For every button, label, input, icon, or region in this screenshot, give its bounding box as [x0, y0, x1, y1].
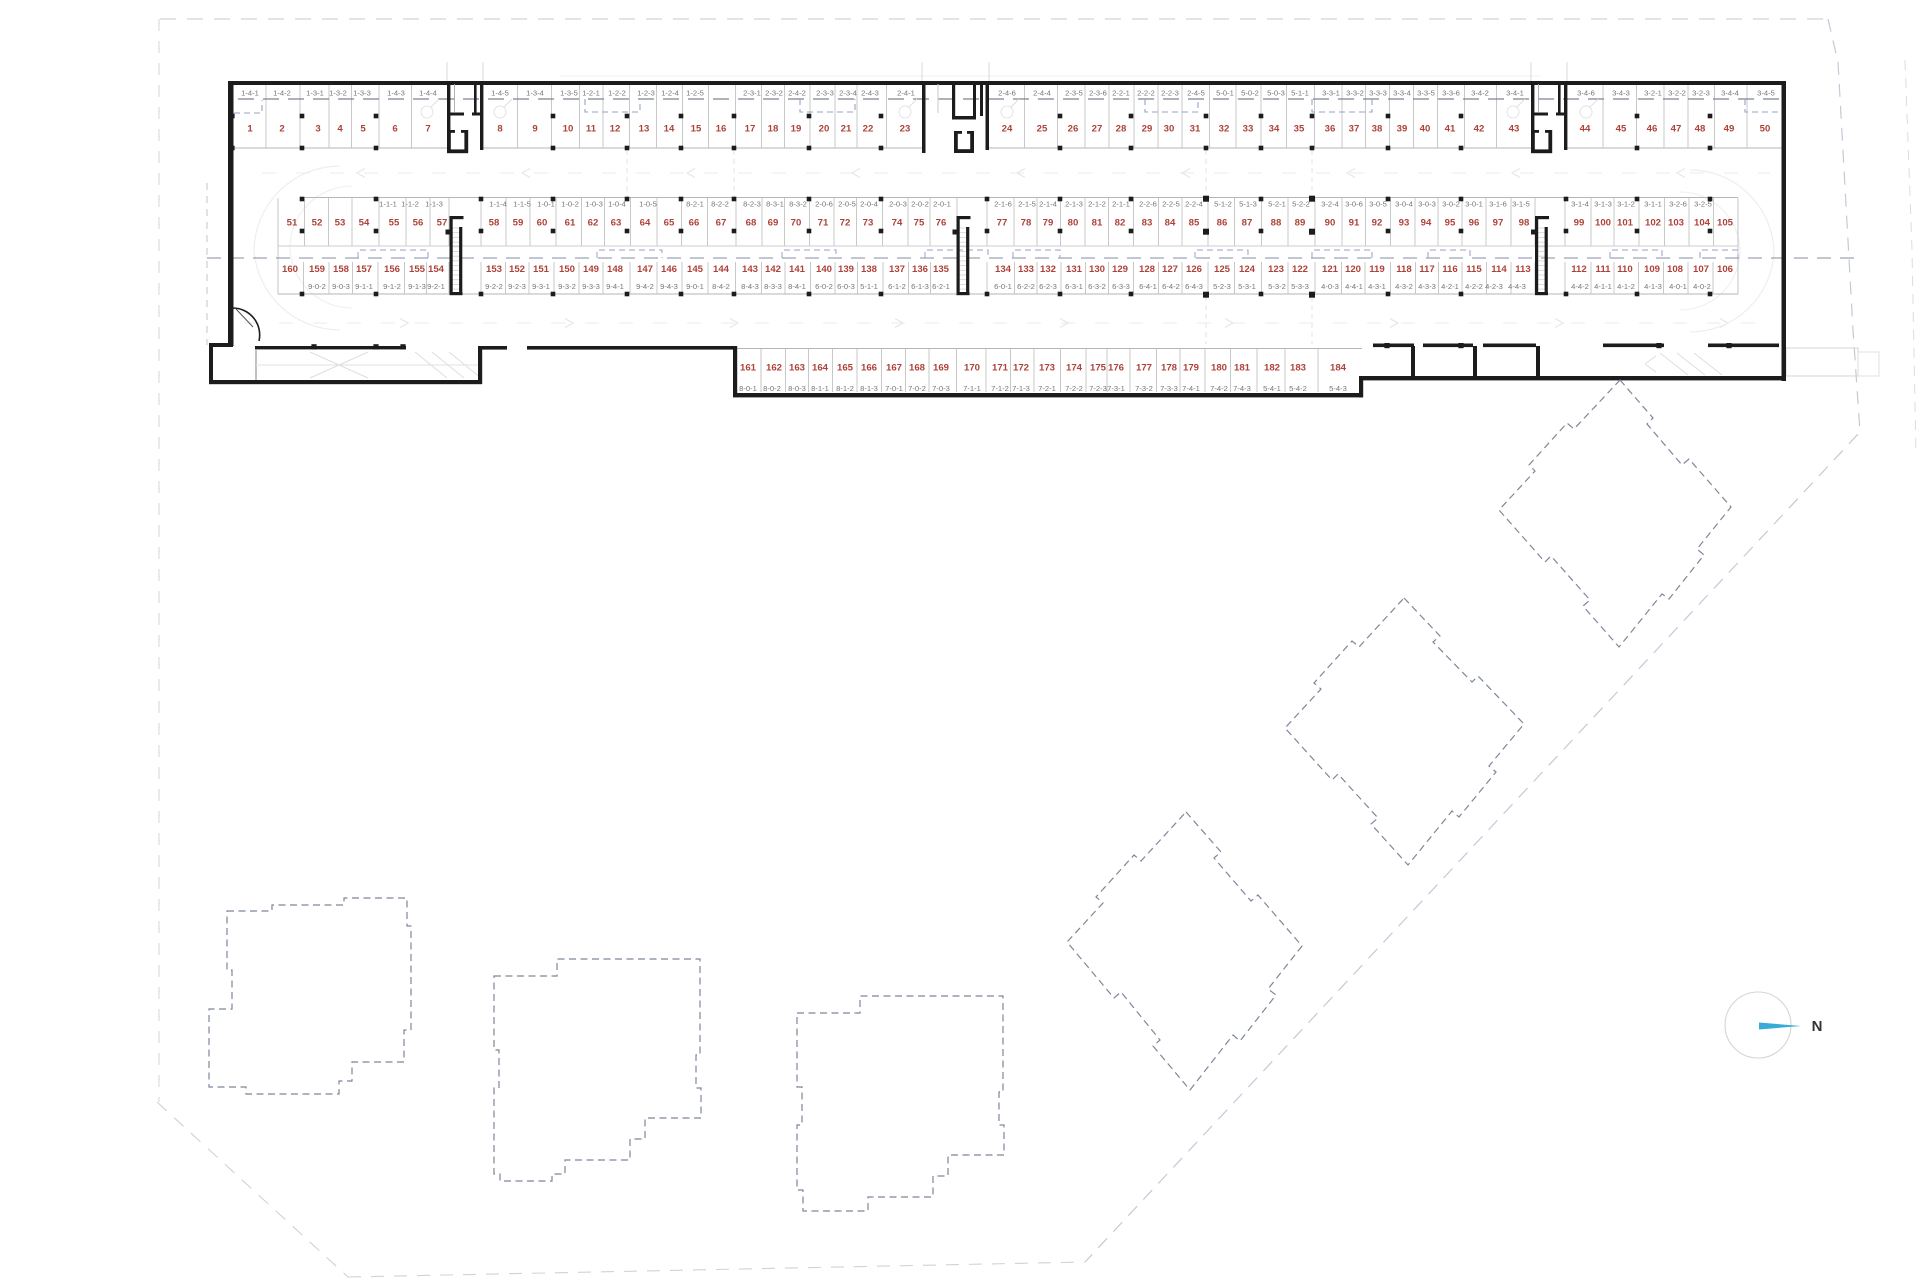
svg-text:8-1-2: 8-1-2	[836, 384, 854, 393]
svg-text:93: 93	[1399, 218, 1410, 229]
svg-text:8-0-2: 8-0-2	[763, 384, 781, 393]
svg-text:2-0-2: 2-0-2	[911, 200, 929, 209]
svg-text:2-2-2: 2-2-2	[1137, 89, 1155, 98]
svg-text:1-1-1: 1-1-1	[379, 200, 397, 209]
svg-text:56: 56	[413, 218, 424, 229]
svg-text:52: 52	[312, 218, 323, 229]
svg-text:9-3-1: 9-3-1	[532, 282, 550, 291]
svg-text:7-2-1: 7-2-1	[1038, 384, 1056, 393]
svg-text:153: 153	[486, 264, 502, 275]
svg-text:141: 141	[789, 264, 806, 275]
svg-text:34: 34	[1269, 124, 1280, 135]
svg-text:126: 126	[1186, 264, 1202, 275]
svg-text:117: 117	[1419, 264, 1434, 275]
svg-text:25: 25	[1037, 124, 1048, 135]
svg-text:2-3-5: 2-3-5	[1065, 89, 1083, 98]
svg-text:15: 15	[691, 124, 702, 135]
svg-text:1-0-3: 1-0-3	[585, 200, 603, 209]
svg-text:113: 113	[1515, 264, 1530, 275]
svg-text:131: 131	[1066, 264, 1083, 275]
svg-text:2: 2	[279, 124, 284, 135]
svg-text:73: 73	[863, 218, 874, 229]
svg-text:8-4-2: 8-4-2	[712, 282, 730, 291]
svg-text:102: 102	[1645, 218, 1661, 229]
svg-text:3-4-1: 3-4-1	[1506, 89, 1524, 98]
svg-text:7-0-3: 7-0-3	[932, 384, 950, 393]
svg-text:6-4-3: 6-4-3	[1185, 282, 1203, 291]
svg-text:10: 10	[563, 124, 574, 135]
svg-text:103: 103	[1668, 218, 1684, 229]
svg-text:1-4-1: 1-4-1	[241, 89, 259, 98]
svg-text:1-0-1: 1-0-1	[537, 200, 555, 209]
svg-text:3-3-6: 3-3-6	[1442, 89, 1460, 98]
svg-text:2-1-3: 2-1-3	[1065, 200, 1083, 209]
svg-text:28: 28	[1116, 124, 1127, 135]
svg-text:119: 119	[1369, 264, 1384, 275]
svg-text:1-4-5: 1-4-5	[491, 89, 509, 98]
svg-text:144: 144	[713, 264, 730, 275]
svg-text:38: 38	[1372, 124, 1383, 135]
svg-text:1-3-1: 1-3-1	[306, 89, 324, 98]
svg-text:147: 147	[637, 264, 653, 275]
svg-text:124: 124	[1239, 264, 1256, 275]
svg-text:1-2-5: 1-2-5	[686, 89, 704, 98]
svg-text:137: 137	[889, 264, 905, 275]
svg-text:66: 66	[689, 218, 700, 229]
svg-text:6-1-2: 6-1-2	[888, 282, 906, 291]
svg-text:158: 158	[333, 264, 350, 275]
svg-text:19: 19	[791, 124, 802, 135]
svg-text:9-2-3: 9-2-3	[508, 282, 526, 291]
svg-text:151: 151	[533, 264, 550, 275]
svg-text:3-0-1: 3-0-1	[1465, 200, 1483, 209]
svg-text:31: 31	[1190, 124, 1201, 135]
svg-text:8-0-1: 8-0-1	[739, 384, 757, 393]
svg-text:4-4-1: 4-4-1	[1345, 282, 1363, 291]
svg-text:96: 96	[1469, 218, 1480, 229]
svg-text:1-4-2: 1-4-2	[273, 89, 291, 98]
svg-text:5-3-3: 5-3-3	[1291, 282, 1309, 291]
svg-text:3-3-3: 3-3-3	[1369, 89, 1387, 98]
svg-text:127: 127	[1162, 264, 1178, 275]
svg-text:84: 84	[1165, 218, 1176, 229]
svg-text:2-4-6: 2-4-6	[998, 89, 1016, 98]
svg-text:91: 91	[1349, 218, 1360, 229]
svg-text:9: 9	[532, 124, 537, 135]
svg-text:176: 176	[1108, 363, 1124, 374]
svg-text:8: 8	[497, 124, 503, 135]
svg-text:2-1-5: 2-1-5	[1018, 200, 1036, 209]
svg-text:171: 171	[992, 363, 1009, 374]
svg-text:4-3-3: 4-3-3	[1418, 282, 1436, 291]
svg-text:1-1-5: 1-1-5	[513, 200, 531, 209]
svg-text:11: 11	[586, 124, 597, 135]
svg-text:4-4-2: 4-4-2	[1571, 282, 1589, 291]
svg-text:46: 46	[1647, 124, 1658, 135]
svg-text:35: 35	[1294, 124, 1305, 135]
svg-text:6-1-3: 6-1-3	[911, 282, 929, 291]
svg-text:2-2-1: 2-2-1	[1112, 89, 1130, 98]
svg-text:4-3-1: 4-3-1	[1368, 282, 1386, 291]
svg-text:70: 70	[791, 218, 802, 229]
svg-text:8-3-3: 8-3-3	[764, 282, 782, 291]
svg-text:1-0-5: 1-0-5	[639, 200, 657, 209]
svg-text:104: 104	[1694, 218, 1711, 229]
svg-text:55: 55	[389, 218, 400, 229]
svg-text:87: 87	[1242, 218, 1253, 229]
svg-text:8-4-1: 8-4-1	[788, 282, 806, 291]
svg-text:42: 42	[1474, 124, 1485, 135]
svg-text:75: 75	[914, 218, 925, 229]
svg-text:94: 94	[1421, 218, 1432, 229]
svg-text:121: 121	[1322, 264, 1339, 275]
svg-text:1-0-4: 1-0-4	[608, 200, 626, 209]
svg-text:4-4-3: 4-4-3	[1508, 282, 1526, 291]
svg-text:6-2-1: 6-2-1	[932, 282, 950, 291]
svg-text:9-0-3: 9-0-3	[332, 282, 350, 291]
svg-text:173: 173	[1039, 363, 1055, 374]
svg-text:97: 97	[1493, 218, 1504, 229]
svg-text:1-3-4: 1-3-4	[526, 89, 544, 98]
svg-text:122: 122	[1292, 264, 1308, 275]
svg-text:4-2-3: 4-2-3	[1485, 282, 1503, 291]
svg-text:9-1-1: 9-1-1	[355, 282, 373, 291]
svg-text:47: 47	[1671, 124, 1682, 135]
svg-text:71: 71	[818, 218, 829, 229]
svg-text:N: N	[1812, 1018, 1823, 1035]
svg-text:183: 183	[1290, 363, 1306, 374]
svg-text:1-1-4: 1-1-4	[489, 200, 507, 209]
svg-text:146: 146	[661, 264, 677, 275]
svg-text:79: 79	[1043, 218, 1054, 229]
svg-text:3-1-4: 3-1-4	[1571, 200, 1589, 209]
svg-text:3-0-2: 3-0-2	[1442, 200, 1460, 209]
svg-text:6-3-1: 6-3-1	[1065, 282, 1083, 291]
svg-text:1-4-4: 1-4-4	[419, 89, 437, 98]
svg-text:98: 98	[1519, 218, 1530, 229]
svg-text:9-2-1: 9-2-1	[427, 282, 445, 291]
svg-text:1-3-2: 1-3-2	[329, 89, 347, 98]
svg-text:30: 30	[1164, 124, 1175, 135]
svg-text:3-0-5: 3-0-5	[1369, 200, 1387, 209]
svg-text:21: 21	[841, 124, 852, 135]
svg-text:3-2-3: 3-2-3	[1692, 89, 1710, 98]
svg-text:12: 12	[610, 124, 621, 135]
svg-text:3-3-1: 3-3-1	[1322, 89, 1340, 98]
svg-text:157: 157	[356, 264, 372, 275]
svg-text:152: 152	[509, 264, 525, 275]
svg-text:33: 33	[1243, 124, 1254, 135]
svg-text:4-2-1: 4-2-1	[1441, 282, 1459, 291]
svg-text:72: 72	[840, 218, 851, 229]
svg-text:8-2-1: 8-2-1	[686, 200, 704, 209]
svg-text:6-0-2: 6-0-2	[815, 282, 833, 291]
svg-text:7-1-3: 7-1-3	[1012, 384, 1030, 393]
svg-text:8-2-2: 8-2-2	[711, 200, 729, 209]
svg-text:6-2-2: 6-2-2	[1017, 282, 1035, 291]
svg-text:111: 111	[1596, 264, 1612, 275]
svg-text:5-2-2: 5-2-2	[1292, 200, 1310, 209]
svg-text:159: 159	[309, 264, 325, 275]
svg-text:162: 162	[766, 363, 782, 374]
svg-text:78: 78	[1021, 218, 1032, 229]
svg-text:2-1-4: 2-1-4	[1039, 200, 1057, 209]
svg-text:3-3-2: 3-3-2	[1346, 89, 1364, 98]
svg-text:132: 132	[1040, 264, 1056, 275]
svg-text:8-3-2: 8-3-2	[789, 200, 807, 209]
svg-text:16: 16	[716, 124, 727, 135]
svg-text:57: 57	[437, 218, 448, 229]
svg-text:142: 142	[765, 264, 781, 275]
svg-text:2-2-5: 2-2-5	[1162, 200, 1180, 209]
svg-text:5-1-2: 5-1-2	[1214, 200, 1232, 209]
svg-text:6-4-2: 6-4-2	[1162, 282, 1180, 291]
svg-text:67: 67	[716, 218, 727, 229]
svg-text:4-0-1: 4-0-1	[1669, 282, 1687, 291]
svg-text:4-1-1: 4-1-1	[1594, 282, 1612, 291]
svg-text:3-1-3: 3-1-3	[1594, 200, 1612, 209]
svg-text:129: 129	[1112, 264, 1128, 275]
svg-text:1-3-5: 1-3-5	[560, 89, 578, 98]
svg-text:3-4-4: 3-4-4	[1721, 89, 1739, 98]
svg-text:5: 5	[360, 124, 366, 135]
svg-text:7-4-3: 7-4-3	[1233, 384, 1251, 393]
svg-text:9-4-3: 9-4-3	[660, 282, 678, 291]
svg-text:6-3-3: 6-3-3	[1112, 282, 1130, 291]
svg-text:163: 163	[789, 363, 805, 374]
svg-text:17: 17	[745, 124, 756, 135]
svg-text:53: 53	[335, 218, 346, 229]
svg-text:8-2-3: 8-2-3	[743, 200, 761, 209]
svg-text:5-4-3: 5-4-3	[1329, 384, 1347, 393]
svg-text:4-3-2: 4-3-2	[1395, 282, 1413, 291]
svg-text:3-2-6: 3-2-6	[1669, 200, 1687, 209]
svg-text:3-0-3: 3-0-3	[1418, 200, 1436, 209]
svg-text:48: 48	[1695, 124, 1706, 135]
svg-text:69: 69	[768, 218, 779, 229]
svg-text:7: 7	[425, 124, 430, 135]
svg-text:2-3-3: 2-3-3	[816, 89, 834, 98]
svg-text:7-3-1: 7-3-1	[1107, 384, 1125, 393]
svg-text:76: 76	[936, 218, 947, 229]
svg-text:85: 85	[1189, 218, 1200, 229]
svg-text:2-0-4: 2-0-4	[860, 200, 878, 209]
svg-text:3-2-5: 3-2-5	[1694, 200, 1712, 209]
svg-text:112: 112	[1571, 264, 1586, 275]
svg-text:7-0-1: 7-0-1	[885, 384, 903, 393]
svg-text:134: 134	[995, 264, 1012, 275]
svg-text:77: 77	[997, 218, 1008, 229]
svg-text:29: 29	[1142, 124, 1153, 135]
svg-text:2-0-3: 2-0-3	[889, 200, 907, 209]
svg-text:2-4-5: 2-4-5	[1187, 89, 1205, 98]
svg-text:107: 107	[1693, 264, 1709, 275]
svg-text:1-0-2: 1-0-2	[561, 200, 579, 209]
svg-text:3-4-6: 3-4-6	[1577, 89, 1595, 98]
svg-text:120: 120	[1345, 264, 1361, 275]
svg-text:108: 108	[1667, 264, 1684, 275]
svg-text:2-3-2: 2-3-2	[765, 89, 783, 98]
svg-text:2-3-6: 2-3-6	[1089, 89, 1107, 98]
svg-text:9-4-1: 9-4-1	[606, 282, 624, 291]
svg-text:59: 59	[513, 218, 524, 229]
svg-text:80: 80	[1068, 218, 1079, 229]
svg-text:168: 168	[909, 363, 926, 374]
svg-text:106: 106	[1717, 264, 1733, 275]
svg-text:9-3-3: 9-3-3	[582, 282, 600, 291]
svg-text:165: 165	[837, 363, 854, 374]
svg-text:60: 60	[537, 218, 548, 229]
svg-text:148: 148	[607, 264, 624, 275]
svg-text:50: 50	[1760, 124, 1771, 135]
svg-text:82: 82	[1115, 218, 1126, 229]
svg-text:9-1-3: 9-1-3	[408, 282, 426, 291]
svg-text:1-1-2: 1-1-2	[401, 200, 419, 209]
svg-text:7-1-1: 7-1-1	[963, 384, 981, 393]
svg-text:8-0-3: 8-0-3	[788, 384, 806, 393]
svg-text:184: 184	[1330, 363, 1347, 374]
svg-text:24: 24	[1002, 124, 1013, 135]
svg-text:2-3-4: 2-3-4	[839, 89, 857, 98]
svg-text:3-4-2: 3-4-2	[1471, 89, 1489, 98]
svg-text:1-2-3: 1-2-3	[637, 89, 655, 98]
svg-text:2-1-2: 2-1-2	[1088, 200, 1106, 209]
svg-text:99: 99	[1574, 218, 1585, 229]
svg-text:140: 140	[816, 264, 832, 275]
svg-text:4-1-3: 4-1-3	[1644, 282, 1662, 291]
svg-text:1-1-3: 1-1-3	[425, 200, 443, 209]
svg-text:3-1-5: 3-1-5	[1512, 200, 1530, 209]
svg-text:40: 40	[1420, 124, 1431, 135]
svg-text:3-2-1: 3-2-1	[1644, 89, 1662, 98]
svg-text:118: 118	[1396, 264, 1412, 275]
svg-text:2-1-1: 2-1-1	[1112, 200, 1130, 209]
svg-text:110: 110	[1617, 264, 1632, 275]
svg-text:4-0-2: 4-0-2	[1693, 282, 1711, 291]
svg-text:3-1-1: 3-1-1	[1644, 200, 1662, 209]
svg-text:83: 83	[1142, 218, 1153, 229]
svg-text:143: 143	[742, 264, 758, 275]
svg-text:125: 125	[1214, 264, 1231, 275]
svg-text:3-3-4: 3-3-4	[1393, 89, 1411, 98]
svg-text:68: 68	[746, 218, 757, 229]
svg-text:5-3-2: 5-3-2	[1268, 282, 1286, 291]
svg-text:2-0-5: 2-0-5	[838, 200, 856, 209]
svg-text:115: 115	[1466, 264, 1482, 275]
svg-text:3-4-5: 3-4-5	[1757, 89, 1775, 98]
svg-text:2-2-6: 2-2-6	[1139, 200, 1157, 209]
svg-text:5-1-3: 5-1-3	[1239, 200, 1257, 209]
svg-text:7-1-2: 7-1-2	[991, 384, 1009, 393]
svg-text:2-4-2: 2-4-2	[788, 89, 806, 98]
svg-text:9-3-2: 9-3-2	[558, 282, 576, 291]
svg-text:32: 32	[1219, 124, 1230, 135]
svg-text:6-2-3: 6-2-3	[1039, 282, 1057, 291]
svg-text:36: 36	[1325, 124, 1336, 135]
svg-text:149: 149	[583, 264, 599, 275]
svg-text:169: 169	[933, 363, 949, 374]
svg-text:155: 155	[409, 264, 426, 275]
svg-text:58: 58	[489, 218, 500, 229]
svg-text:8-1-3: 8-1-3	[860, 384, 878, 393]
svg-text:9-4-2: 9-4-2	[636, 282, 654, 291]
svg-text:166: 166	[861, 363, 877, 374]
svg-text:133: 133	[1018, 264, 1034, 275]
svg-text:3-2-4: 3-2-4	[1321, 200, 1339, 209]
svg-text:1: 1	[247, 124, 253, 135]
svg-text:90: 90	[1325, 218, 1336, 229]
svg-text:6: 6	[392, 124, 397, 135]
svg-text:167: 167	[886, 363, 902, 374]
svg-text:174: 174	[1066, 363, 1083, 374]
svg-text:41: 41	[1445, 124, 1456, 135]
svg-text:49: 49	[1724, 124, 1735, 135]
svg-text:7-2-3: 7-2-3	[1089, 384, 1107, 393]
svg-text:89: 89	[1295, 218, 1306, 229]
svg-text:128: 128	[1139, 264, 1156, 275]
svg-text:37: 37	[1349, 124, 1360, 135]
svg-text:26: 26	[1068, 124, 1079, 135]
svg-text:81: 81	[1092, 218, 1103, 229]
svg-text:179: 179	[1183, 363, 1199, 374]
svg-text:2-3-1: 2-3-1	[743, 89, 761, 98]
svg-text:18: 18	[768, 124, 779, 135]
svg-text:5-4-2: 5-4-2	[1289, 384, 1307, 393]
svg-text:9-1-2: 9-1-2	[383, 282, 401, 291]
svg-text:3: 3	[315, 124, 320, 135]
svg-text:9-2-2: 9-2-2	[485, 282, 503, 291]
svg-text:54: 54	[359, 218, 370, 229]
svg-text:20: 20	[819, 124, 830, 135]
svg-text:23: 23	[900, 124, 911, 135]
svg-text:74: 74	[892, 218, 903, 229]
svg-text:1-4-3: 1-4-3	[387, 89, 405, 98]
svg-text:7-3-3: 7-3-3	[1160, 384, 1178, 393]
svg-text:3-2-2: 3-2-2	[1668, 89, 1686, 98]
svg-text:5-2-1: 5-2-1	[1268, 200, 1286, 209]
svg-text:43: 43	[1509, 124, 1520, 135]
svg-text:5-0-3: 5-0-3	[1267, 89, 1285, 98]
svg-text:3-3-5: 3-3-5	[1417, 89, 1435, 98]
svg-text:8-4-3: 8-4-3	[741, 282, 759, 291]
svg-text:5-4-1: 5-4-1	[1263, 384, 1281, 393]
svg-text:138: 138	[861, 264, 878, 275]
svg-text:150: 150	[559, 264, 575, 275]
svg-text:6-3-2: 6-3-2	[1088, 282, 1106, 291]
svg-text:6-0-3: 6-0-3	[837, 282, 855, 291]
svg-text:51: 51	[287, 218, 298, 229]
svg-text:135: 135	[933, 264, 950, 275]
svg-text:105: 105	[1717, 218, 1734, 229]
svg-text:154: 154	[428, 264, 445, 275]
svg-text:2-1-6: 2-1-6	[994, 200, 1012, 209]
svg-text:64: 64	[640, 218, 651, 229]
svg-text:5-3-1: 5-3-1	[1238, 282, 1256, 291]
svg-text:181: 181	[1234, 363, 1251, 374]
svg-text:1-2-2: 1-2-2	[608, 89, 626, 98]
svg-text:6-4-1: 6-4-1	[1139, 282, 1157, 291]
svg-text:13: 13	[639, 124, 650, 135]
svg-text:7-0-2: 7-0-2	[908, 384, 926, 393]
svg-text:9-0-2: 9-0-2	[308, 282, 326, 291]
svg-text:1-3-3: 1-3-3	[353, 89, 371, 98]
svg-text:88: 88	[1271, 218, 1282, 229]
svg-text:44: 44	[1580, 124, 1591, 135]
svg-text:5-2-3: 5-2-3	[1213, 282, 1231, 291]
svg-text:5-0-1: 5-0-1	[1216, 89, 1234, 98]
svg-text:7-2-2: 7-2-2	[1065, 384, 1083, 393]
svg-text:45: 45	[1616, 124, 1627, 135]
